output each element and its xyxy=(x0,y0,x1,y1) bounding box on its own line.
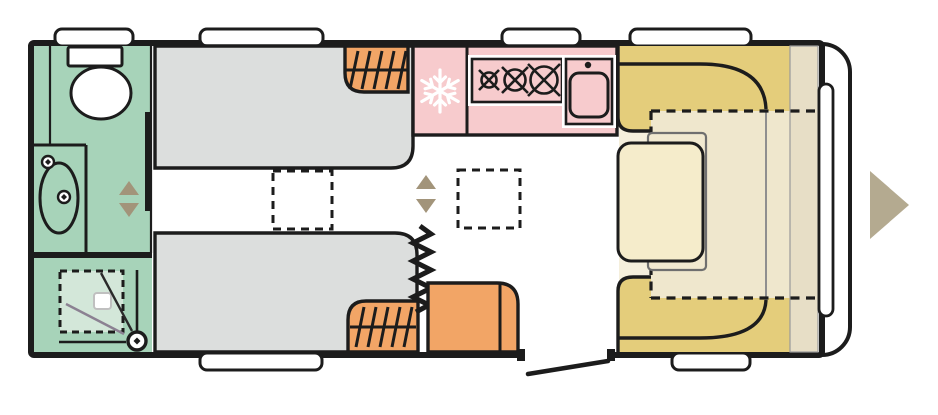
window-top-lounge xyxy=(630,29,751,46)
caravan-floorplan xyxy=(0,0,938,415)
basin-tap xyxy=(42,156,54,168)
window-bottom-lounge xyxy=(672,353,750,370)
table xyxy=(618,143,703,261)
floorplan-canvas xyxy=(0,0,938,415)
shower-drain xyxy=(128,332,146,350)
shower-tray xyxy=(60,271,123,332)
door-jamb-left xyxy=(517,349,525,361)
sink-icon xyxy=(570,73,608,117)
washroom xyxy=(34,46,152,352)
door-opening xyxy=(524,349,608,361)
shower-partition-wall xyxy=(34,252,152,258)
wardrobe-top xyxy=(345,46,408,92)
toilet-bowl xyxy=(71,67,131,119)
lounge xyxy=(618,46,818,352)
window-top-washroom xyxy=(55,29,133,46)
shower-fitting xyxy=(94,293,111,309)
sideboard xyxy=(790,46,818,352)
toilet-cistern xyxy=(68,47,122,66)
window-bottom-bed xyxy=(200,353,322,370)
washroom-door-jamb xyxy=(145,112,152,211)
faucet-dot xyxy=(585,62,591,68)
kitchen xyxy=(413,46,617,135)
basin-drain xyxy=(58,191,70,203)
cabinet-seat xyxy=(428,283,518,352)
window-top-kitchen xyxy=(502,29,580,46)
hob-burner-icon xyxy=(479,70,499,90)
front-window xyxy=(819,84,833,316)
window-top-bed xyxy=(200,29,323,46)
wardrobe-bottom xyxy=(348,301,418,352)
